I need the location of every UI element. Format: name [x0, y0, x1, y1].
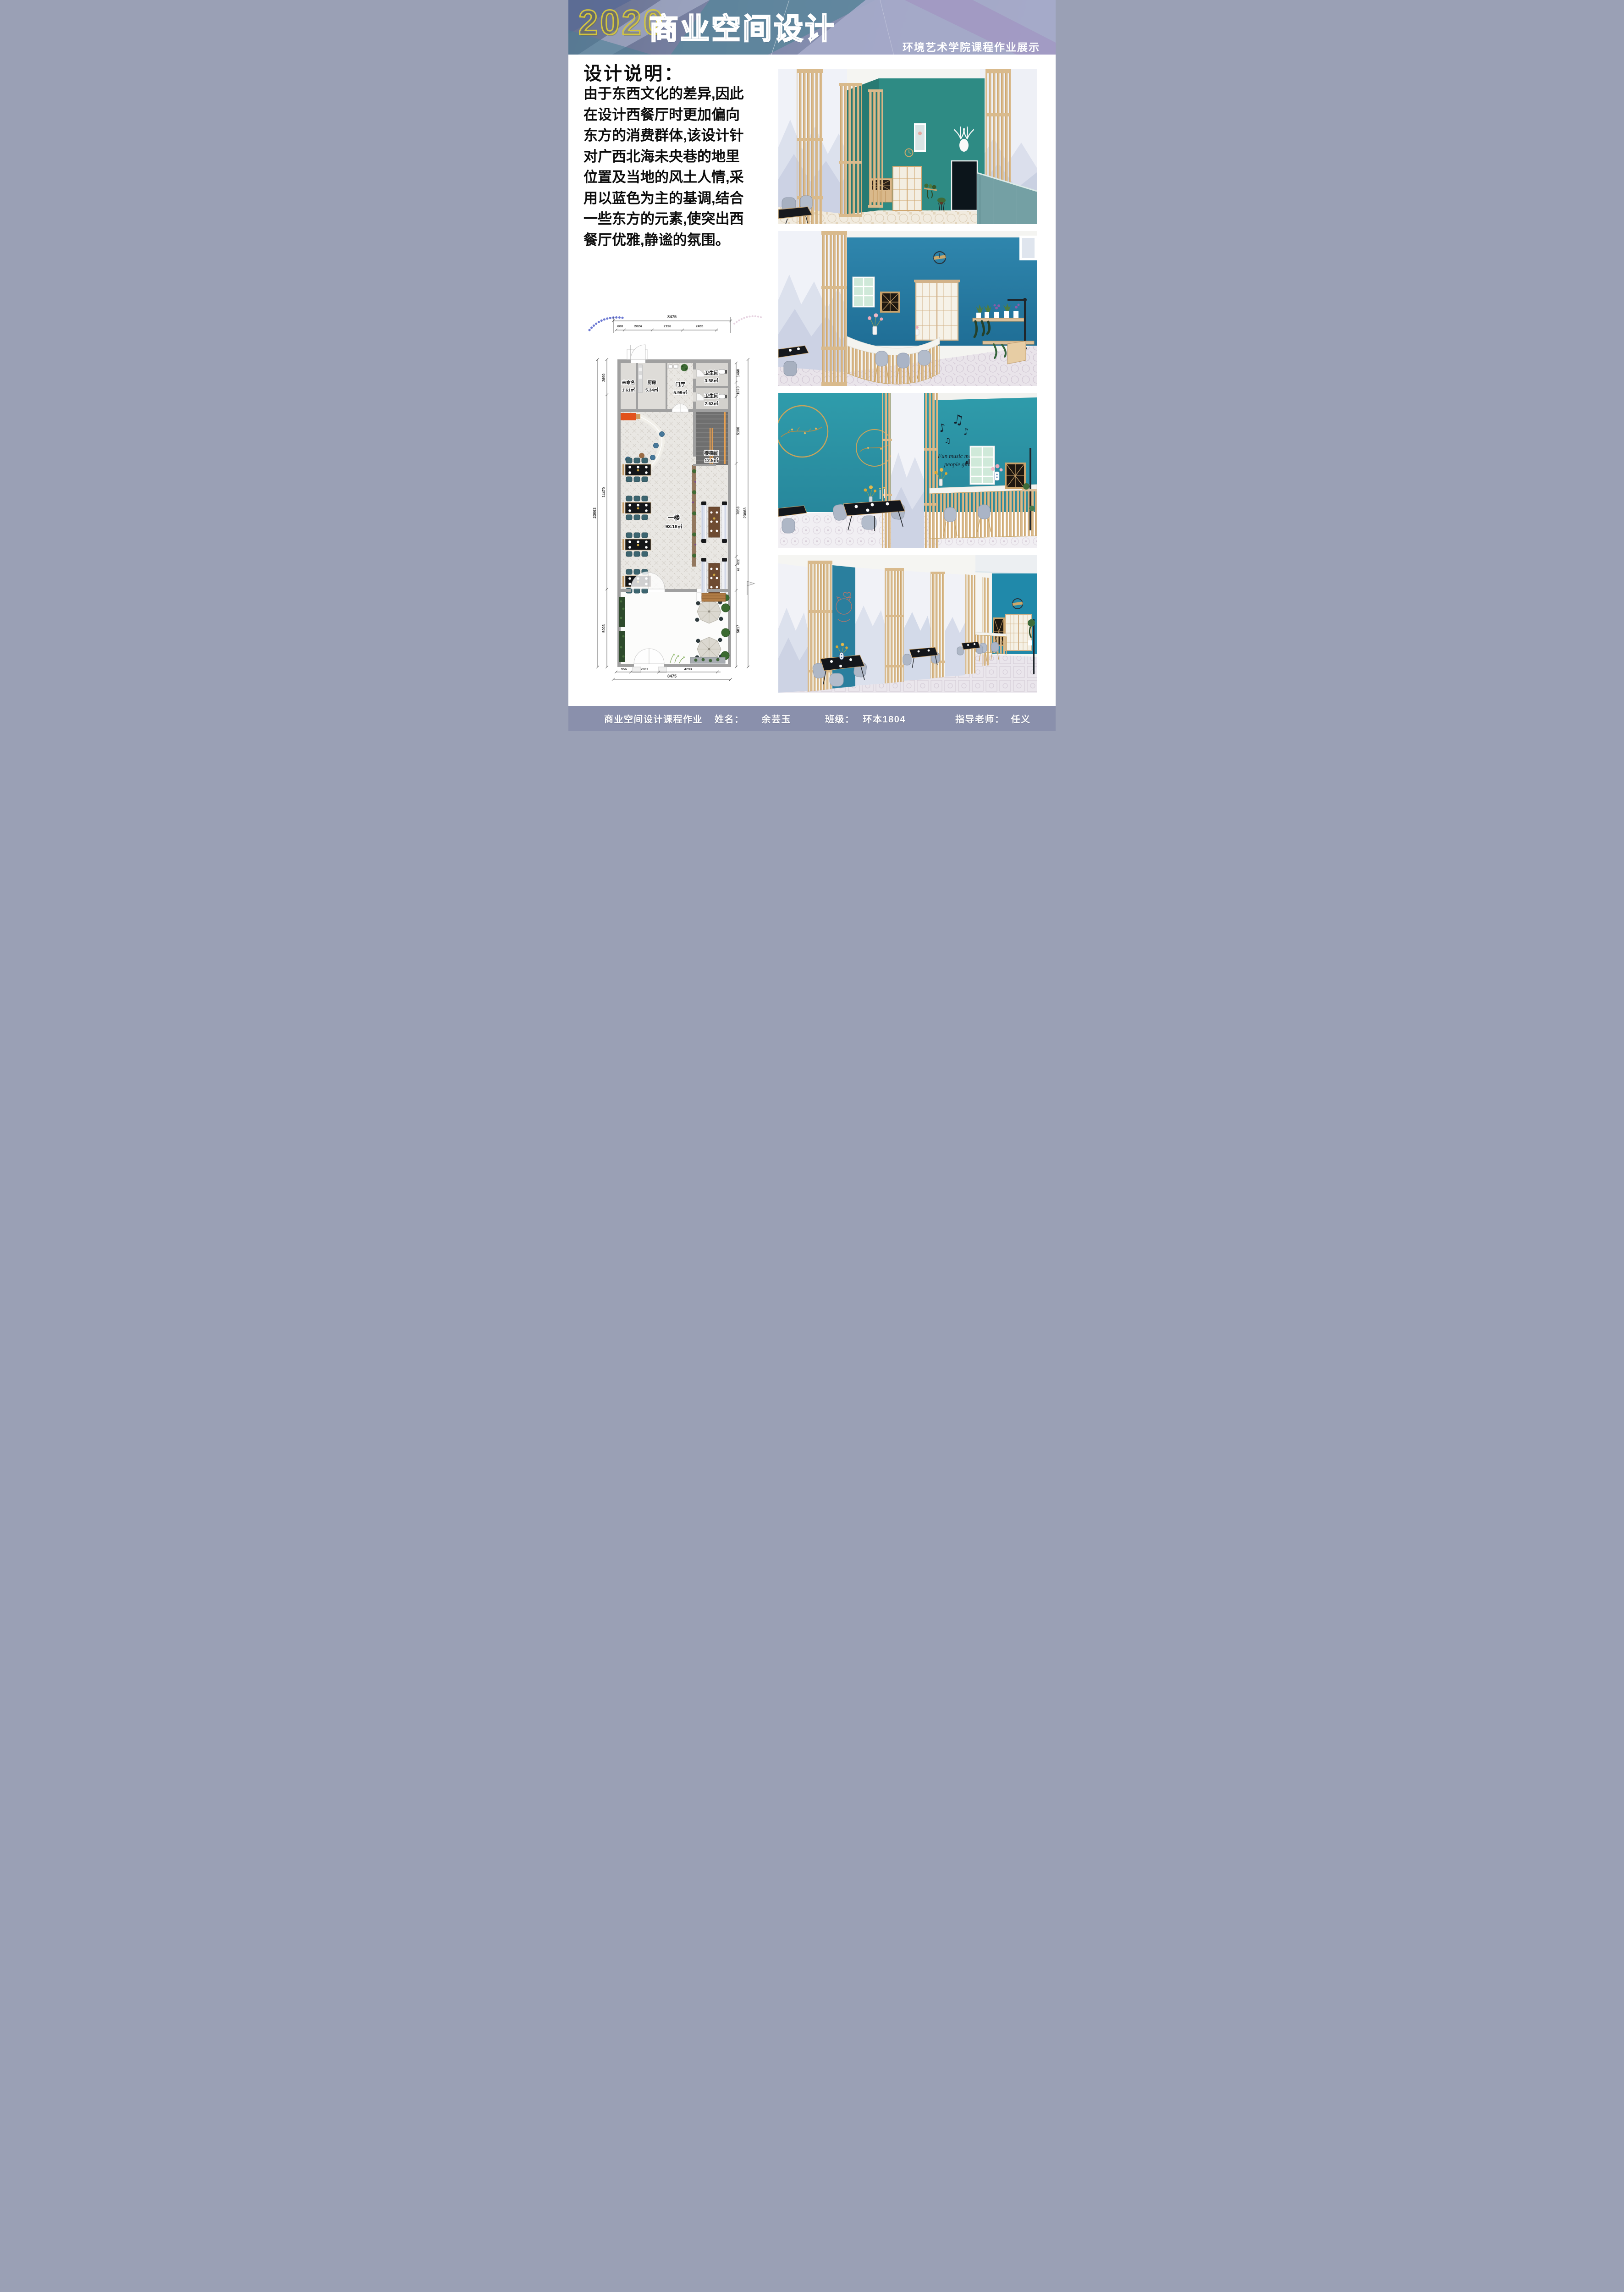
svg-text:2037: 2037	[641, 667, 649, 671]
floor-plan: 未命名 1.61㎡ 厨房 5.34㎡ 门厅 5.99㎡ 卫生间 3.58㎡ 卫生…	[587, 310, 763, 684]
svg-text:门厅: 门厅	[676, 381, 686, 387]
svg-text:7053: 7053	[736, 507, 740, 515]
description-line: 餐厅优雅,静谧的氛围。	[584, 230, 771, 251]
footer-name: 余芸玉	[762, 712, 792, 725]
description-text: 由于东西文化的差异,因此 在设计西餐厅时更加偏向 东方的消费群体,该设计针 对广…	[584, 83, 771, 250]
footer-course: 商业空间设计课程作业	[604, 712, 703, 725]
svg-text:♫: ♫	[944, 436, 951, 445]
wood-slat-partition	[885, 568, 904, 683]
footer-credit-bar: 商业空间设计课程作业 姓名： 余芸玉 班级： 环本1804 指导老师： 任义	[568, 706, 1056, 731]
svg-text:2690: 2690	[602, 374, 606, 382]
svg-text:956: 956	[621, 667, 627, 671]
svg-text:2455: 2455	[696, 324, 704, 328]
header-banner: 2020 商业空间设计 环境艺术学院课程作业展示	[568, 0, 1056, 55]
description-heading: 设计说明：	[584, 59, 684, 85]
render-bar-counter	[778, 231, 1037, 386]
footer-class: 环本1804	[863, 712, 906, 725]
footer-class-label: 班级：	[825, 712, 855, 725]
svg-text:600: 600	[617, 324, 623, 328]
render-entrance-hall	[778, 69, 1037, 224]
svg-text:2024: 2024	[634, 324, 643, 328]
svg-text:5.99㎡: 5.99㎡	[673, 390, 687, 396]
svg-text:23063: 23063	[592, 507, 597, 518]
teal-wall-cat-art	[832, 565, 855, 689]
render-dining-music-wall: ♪ ♫ ♪ ♫ Fun music makes people glad	[778, 393, 1037, 548]
svg-text:14470: 14470	[602, 487, 606, 497]
svg-text:8475: 8475	[667, 674, 677, 678]
svg-text:622: 622	[737, 559, 740, 565]
svg-text:一楼: 一楼	[668, 514, 680, 521]
svg-text:people glad: people glad	[944, 461, 973, 468]
svg-text:2196: 2196	[664, 324, 672, 328]
poster: 2020 商业空间设计 环境艺术学院课程作业展示 设计说明： 由于东西文化的差异…	[568, 0, 1056, 731]
svg-text:卫生间: 卫生间	[704, 393, 719, 399]
description-line: 位置及当地的风土人情,采	[584, 167, 771, 188]
staircase	[696, 411, 728, 465]
svg-text:61: 61	[738, 567, 740, 571]
description-line: 在设计西餐厅时更加偏向	[584, 105, 771, 126]
shoji-double-door	[1006, 615, 1031, 650]
svg-text:4293: 4293	[684, 667, 692, 671]
svg-text:1460: 1460	[736, 369, 740, 377]
description-line: 东方的消费群体,该设计针	[584, 125, 771, 146]
svg-text:5003: 5003	[602, 624, 606, 633]
mural-wall	[778, 563, 808, 693]
wood-slat-partition	[868, 89, 883, 208]
svg-text:厨房: 厨房	[647, 380, 656, 386]
svg-text:8475: 8475	[667, 314, 677, 319]
mint-shelf-unit	[970, 446, 995, 485]
footer-teacher-label: 指导老师：	[955, 712, 1005, 725]
entrance-door	[627, 345, 647, 359]
svg-text:5817: 5817	[736, 625, 740, 633]
svg-text:楼梯间: 楼梯间	[704, 450, 719, 456]
wood-slat-partition	[821, 231, 847, 386]
description-line: 由于东西文化的差异,因此	[584, 83, 771, 105]
lattice-window	[1005, 463, 1026, 489]
description-line: 一些东方的元素,使突出西	[584, 209, 771, 230]
svg-text:♪: ♪	[963, 426, 969, 437]
svg-text:23063: 23063	[743, 507, 747, 518]
sliding-shoji-door	[914, 280, 960, 340]
dark-doorway	[952, 161, 977, 210]
svg-text:♫: ♫	[951, 411, 964, 428]
mint-shelf-unit	[853, 277, 875, 307]
description-line: 对广西北海未央巷的地里	[584, 146, 771, 167]
svg-text:12.5㎡: 12.5㎡	[705, 457, 718, 463]
white-mural-partition	[891, 393, 924, 548]
svg-text:5100: 5100	[736, 427, 740, 435]
svg-text:2.63㎡: 2.63㎡	[705, 401, 718, 407]
header-subtitle: 环境艺术学院课程作业展示	[903, 39, 1040, 54]
render-corridor-dining	[778, 555, 1037, 693]
plant-ledge	[692, 465, 696, 567]
mural-wall	[945, 573, 965, 677]
description-line: 用以蓝色为主的基调,结合	[584, 188, 771, 209]
wood-slat-partition	[839, 83, 862, 217]
svg-text:1.61㎡: 1.61㎡	[622, 387, 635, 393]
svg-text:卫生间: 卫生间	[704, 370, 719, 376]
lattice-window	[880, 292, 900, 313]
svg-text:未命名: 未命名	[622, 380, 635, 386]
pink-arc-decor	[734, 316, 761, 324]
svg-text:3.58㎡: 3.58㎡	[705, 378, 718, 384]
footer-name-label: 姓名：	[715, 712, 744, 725]
shoji-door	[893, 166, 921, 210]
header-title: 商业空间设计	[649, 6, 836, 48]
svg-text:93.18㎡: 93.18㎡	[666, 523, 683, 529]
wall-art-frame	[914, 123, 926, 152]
picture-frame	[1019, 236, 1037, 260]
svg-text:1070: 1070	[736, 386, 740, 395]
footer-teacher: 任义	[1011, 712, 1031, 725]
kitchen-counter	[638, 365, 643, 392]
svg-text:5.34㎡: 5.34㎡	[645, 387, 658, 393]
